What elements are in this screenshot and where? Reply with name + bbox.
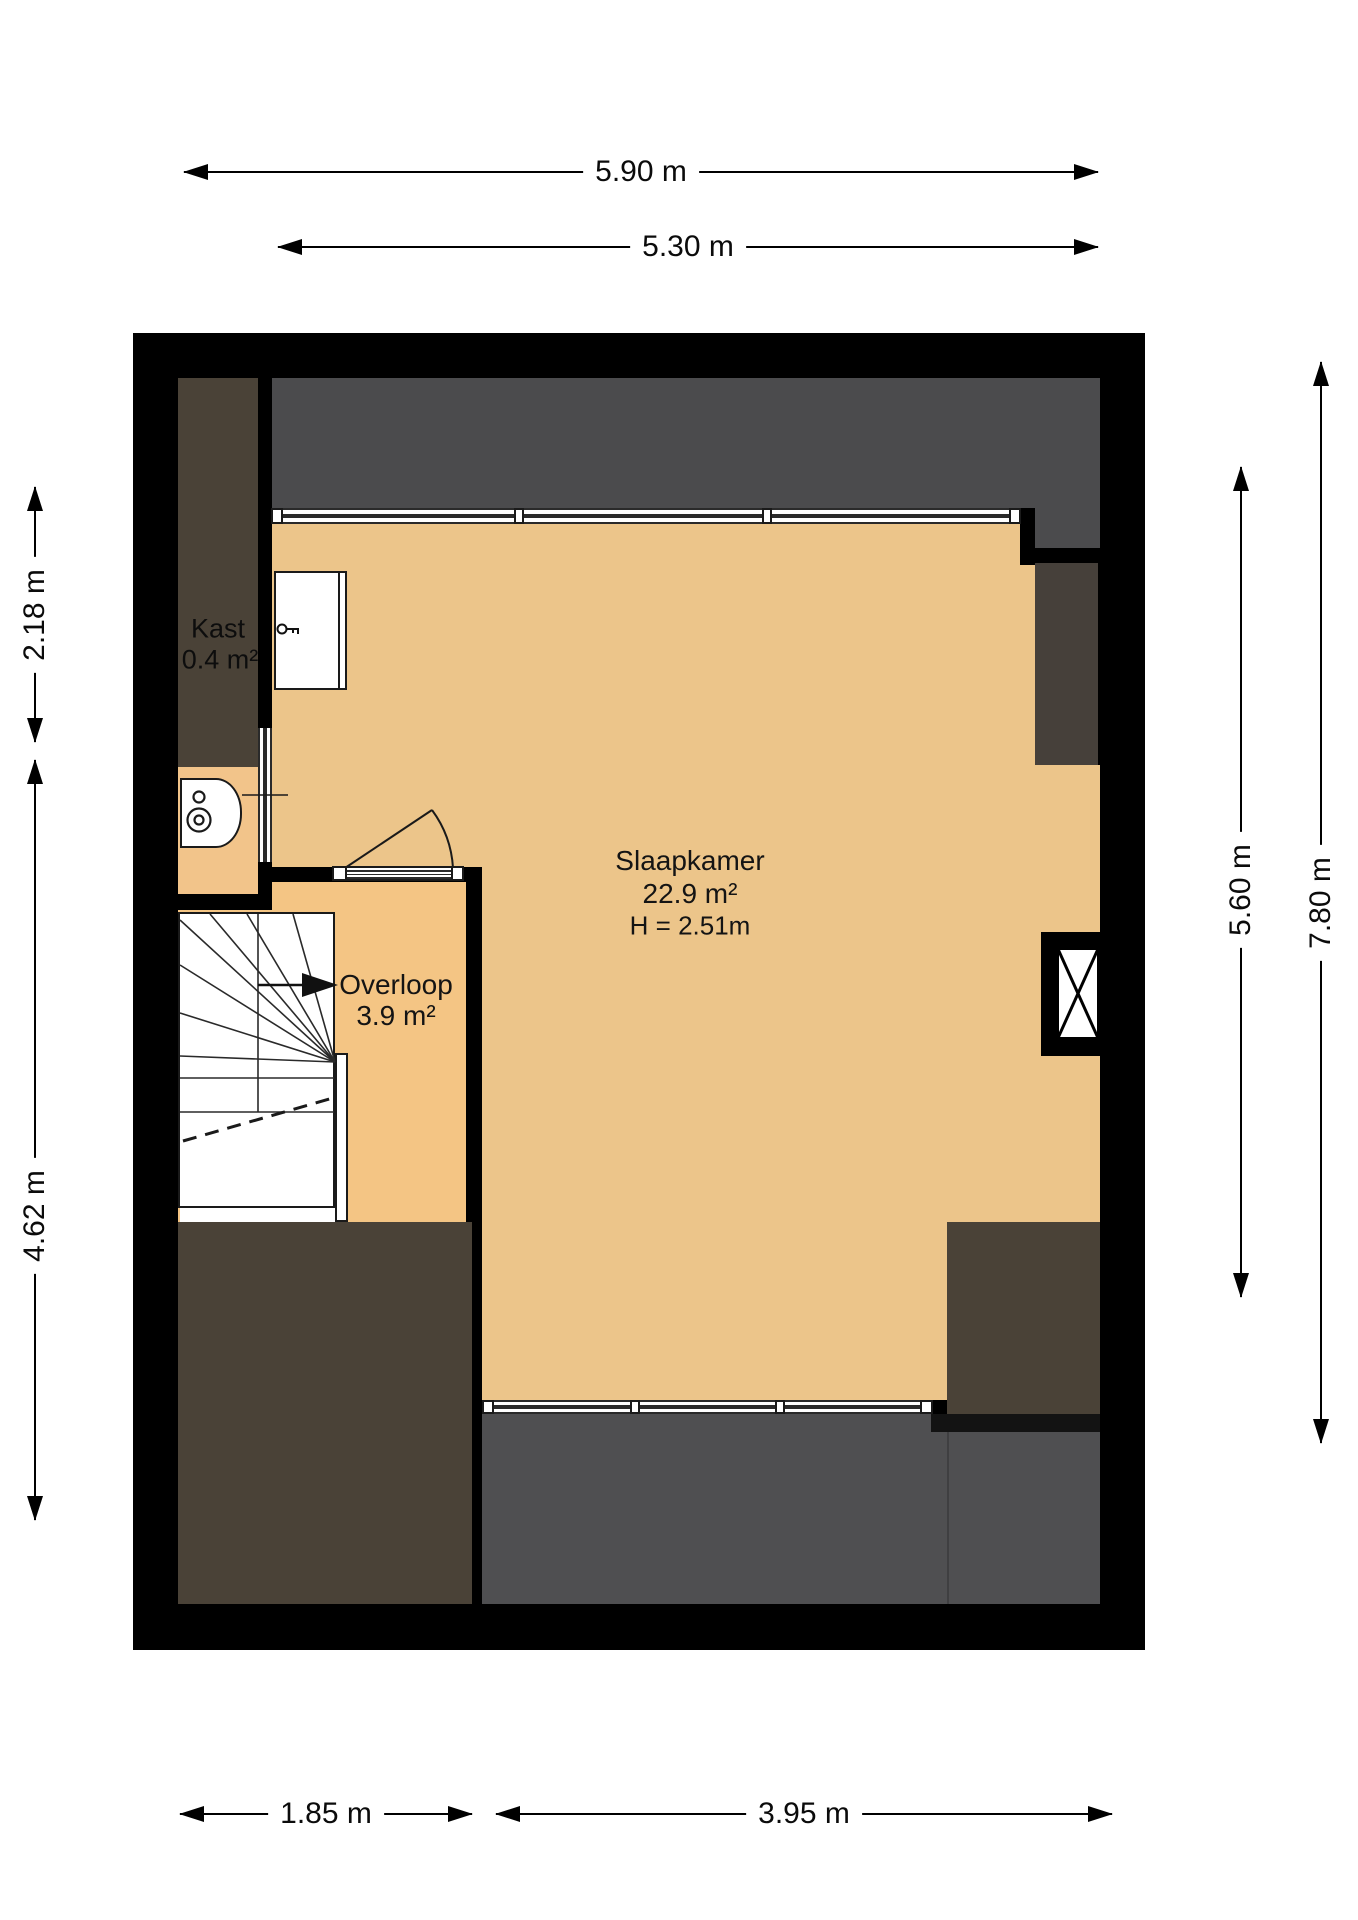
roof-edge-line xyxy=(947,1432,949,1604)
closet-door xyxy=(274,571,347,690)
dimension-label: 5.30 m xyxy=(630,230,746,264)
top-window-cap-right xyxy=(1009,508,1021,524)
shaft-chimney-symbol xyxy=(1056,947,1100,1040)
roof-slope-bottom-left xyxy=(178,1222,472,1604)
door-opening xyxy=(332,866,464,881)
overloop-floor xyxy=(272,882,466,910)
internal-window xyxy=(258,728,272,862)
dimension-label: 5.60 m xyxy=(1224,832,1258,948)
floorplan-page: { "title": "Floor plan - second floor (a… xyxy=(0,0,1358,1920)
slaapkamer-floor xyxy=(482,867,1100,1222)
top-window-mullion xyxy=(762,508,772,524)
roof-slope-top xyxy=(272,378,1100,508)
bottom-window xyxy=(493,1400,920,1414)
room-name-slaapkamer: Slaapkamer xyxy=(615,845,764,877)
wall-bar-bottom-right xyxy=(931,1414,1100,1432)
room-name-kast: Kast xyxy=(191,614,245,645)
roof-brown-bottom-right xyxy=(947,1222,1100,1418)
roof-slope-top-right xyxy=(1035,505,1100,548)
winder-staircase xyxy=(178,912,335,1208)
kast-roof-slope xyxy=(178,378,258,767)
dimension-label: 2.18 m xyxy=(18,557,52,673)
room-height-slaapkamer: H = 2.51m xyxy=(630,911,751,942)
roof-slope-bottom xyxy=(482,1414,1100,1604)
slaapkamer-floor xyxy=(1020,565,1035,765)
stair-landing xyxy=(180,1208,346,1222)
dimension-label: 7.80 m xyxy=(1304,845,1338,961)
bottom-window-cap-left xyxy=(482,1400,494,1414)
dimension-label: 4.62 m xyxy=(18,1158,52,1274)
room-area-kast: 0.4 m² xyxy=(182,645,259,676)
top-window-cap-left xyxy=(271,508,283,524)
boiler-unit xyxy=(180,778,242,848)
room-area-slaapkamer: 22.9 m² xyxy=(643,878,738,910)
room-area-overloop: 3.9 m² xyxy=(356,1000,435,1032)
stair-rail xyxy=(335,1053,348,1222)
dimension-label: 3.95 m xyxy=(746,1797,862,1831)
roof-brown-right-strip xyxy=(1035,563,1098,765)
slaapkamer-floor xyxy=(272,524,1020,765)
dimension-label: 1.85 m xyxy=(268,1797,384,1831)
slaapkamer-floor xyxy=(482,1222,947,1400)
top-window-mullion xyxy=(514,508,524,524)
dimension-label: 5.90 m xyxy=(583,155,699,189)
room-name-overloop: Overloop xyxy=(339,969,453,1001)
bottom-window-mullion xyxy=(630,1400,640,1414)
bottom-window-mullion xyxy=(775,1400,785,1414)
top-window xyxy=(282,508,1009,524)
bottom-window-cap-right xyxy=(920,1400,933,1414)
